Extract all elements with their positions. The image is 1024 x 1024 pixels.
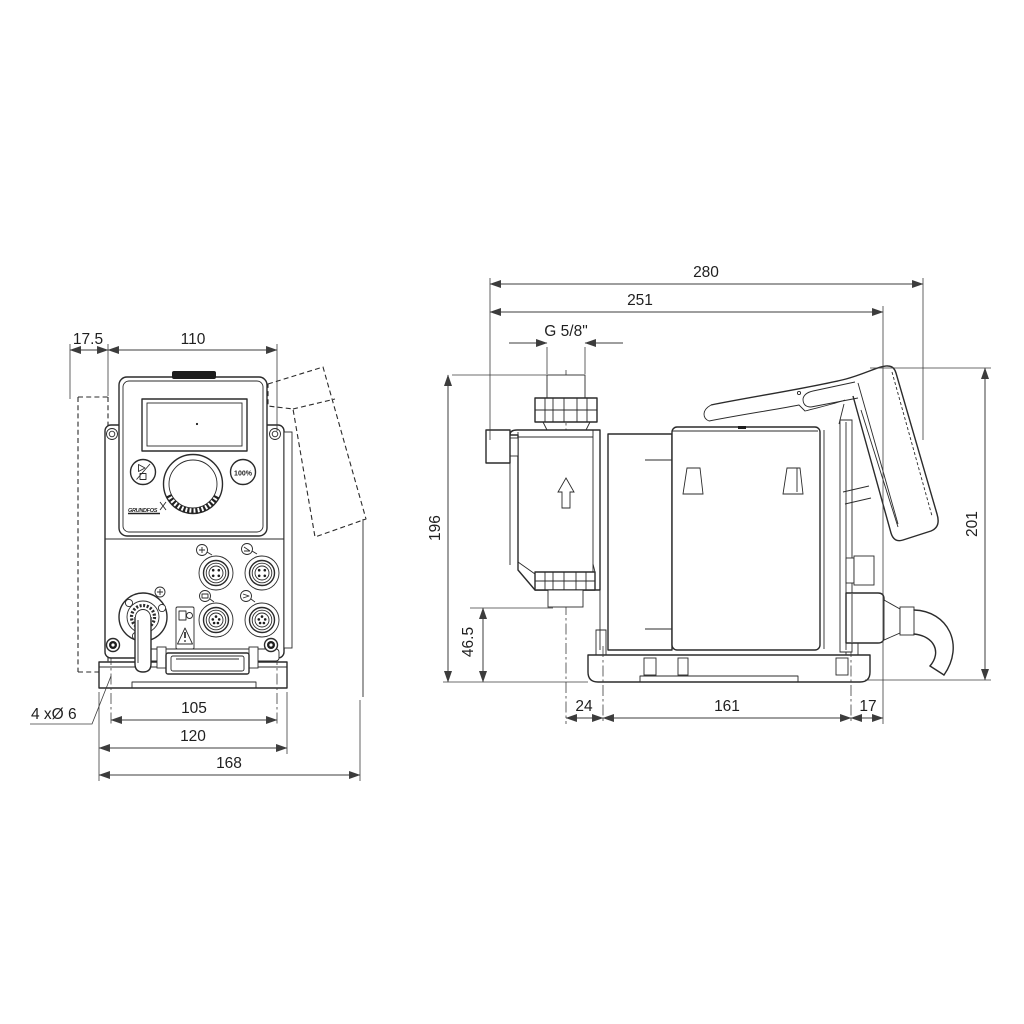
socket <box>245 556 279 590</box>
control-panel: 100% GRUNDFOS <box>119 371 267 536</box>
mounting-rail-edge <box>284 432 292 648</box>
display <box>142 399 247 451</box>
holes-note: 4 xØ 6 <box>31 706 77 723</box>
side-view: 280 251 G 5/8" 196 46.5 24 161 17 201 <box>427 264 991 724</box>
drain-tube <box>135 617 151 672</box>
dim-depth-to-cable: 251 <box>627 292 653 309</box>
front-view: 100% GRUNDFOS <box>30 331 366 781</box>
dosing-head <box>486 370 600 724</box>
screw-icon <box>265 639 278 652</box>
dimensional-drawing: 100% GRUNDFOS <box>0 0 1024 1024</box>
click-wheel[interactable] <box>164 455 223 514</box>
hundred-percent-label: 100% <box>234 471 253 478</box>
dim-wall-offset: 17.5 <box>73 331 103 348</box>
screw-icon <box>107 429 118 440</box>
dim-width: 110 <box>181 331 206 348</box>
hundred-percent-button[interactable]: 100% <box>231 460 256 485</box>
dim-front-hole-offset: 24 <box>575 698 593 715</box>
socket <box>245 603 279 637</box>
dim-side-hole-spacing: 161 <box>714 698 740 715</box>
dim-suction-height: 46.5 <box>460 627 477 657</box>
dim-height-to-connection: 196 <box>427 515 444 541</box>
drawing-canvas: 100% GRUNDFOS <box>0 0 1024 1024</box>
head-body <box>510 430 600 650</box>
socket-function-icon <box>155 587 165 597</box>
dim-total-depth: 280 <box>693 264 719 281</box>
socket <box>199 556 233 590</box>
screw-icon <box>270 429 281 440</box>
dim-total-width: 168 <box>216 755 242 772</box>
start-stop-button[interactable] <box>131 460 156 485</box>
screw-icon <box>107 639 120 652</box>
panel-top-tab <box>172 371 216 379</box>
warning-label <box>176 607 194 649</box>
dim-total-height: 201 <box>964 511 981 537</box>
dim-plate-width: 120 <box>180 728 206 745</box>
dim-connection-thread: G 5/8" <box>544 323 587 340</box>
mains-cable-side <box>914 610 953 675</box>
socket <box>199 603 233 637</box>
cable-gland <box>846 556 874 585</box>
dim-rear-overhang: 17 <box>859 698 876 715</box>
pump-body-side <box>608 404 852 652</box>
dim-hole-spacing: 105 <box>181 700 207 717</box>
